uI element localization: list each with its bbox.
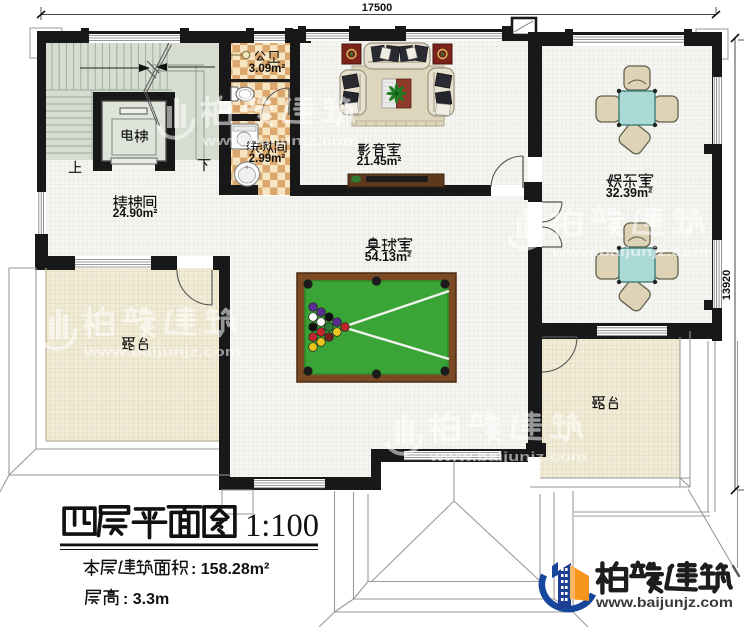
svg-text:www.baijunjz.com: www.baijunjz.com [429, 450, 587, 464]
svg-text:54.13m²: 54.13m² [365, 250, 412, 264]
svg-text:2.99m²: 2.99m² [249, 153, 286, 165]
svg-text:: 3.3m: : 3.3m [123, 591, 169, 608]
svg-text:24.90m²: 24.90m² [113, 206, 158, 220]
svg-text:www.baijunjz.com: www.baijunjz.com [0, 242, 31, 256]
svg-text:: 158.28m²: : 158.28m² [191, 561, 269, 578]
svg-text:www.baijunjz.com: www.baijunjz.com [83, 345, 241, 359]
svg-text:13920: 13920 [721, 270, 733, 301]
svg-text:3.09m²: 3.09m² [249, 63, 286, 75]
svg-text:www.baijunjz.com: www.baijunjz.com [201, 134, 359, 148]
svg-text:www.baijunjz.com: www.baijunjz.com [551, 245, 709, 259]
svg-text:21.45m²: 21.45m² [357, 154, 402, 168]
svg-text:32.39m²: 32.39m² [606, 186, 653, 200]
svg-text:1:100: 1:100 [245, 508, 319, 544]
svg-text:17500: 17500 [362, 2, 393, 14]
svg-text:www.baijunjz.com: www.baijunjz.com [595, 594, 733, 610]
